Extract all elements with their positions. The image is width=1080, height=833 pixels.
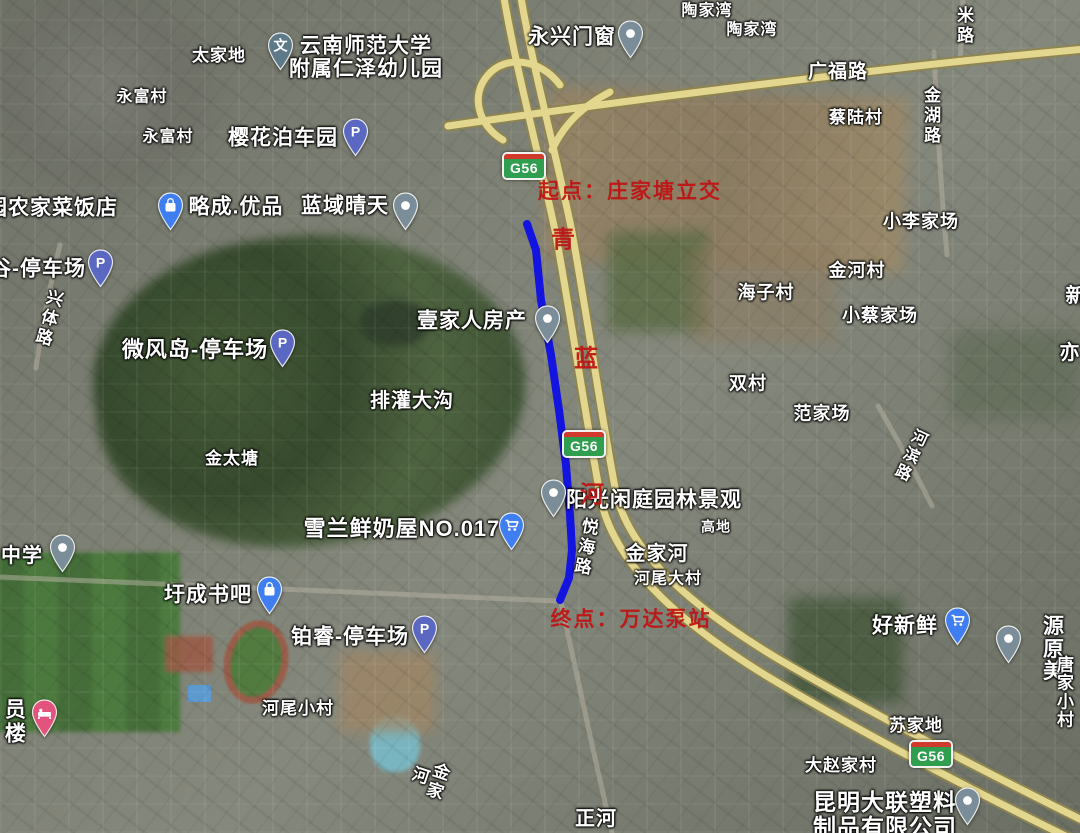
poi-label[interactable]: 蓝域晴天 <box>301 196 389 219</box>
poi-label[interactable]: 樱花泊车园 <box>228 128 338 151</box>
village-label: 唐家小村 <box>1057 656 1075 729</box>
cart-pin[interactable] <box>944 607 971 646</box>
road-label: 金湖路 <box>921 86 939 146</box>
dot-pin[interactable] <box>49 534 76 573</box>
dot-icon <box>541 480 565 517</box>
dot-pin[interactable] <box>617 20 644 59</box>
road-label: 广福路 <box>808 63 868 84</box>
svg-text:P: P <box>95 254 104 270</box>
parking-pin[interactable]: P <box>87 249 114 288</box>
village-label: 金太塘 <box>205 450 259 468</box>
road-label: 河滨路 <box>889 426 929 485</box>
village-label: 金河村 <box>829 261 886 280</box>
hotel-pin[interactable] <box>31 699 58 738</box>
school-wen-icon: 文 <box>268 33 292 70</box>
parking-icon: P <box>88 250 112 287</box>
village-label: 双村 <box>729 374 767 393</box>
dot-icon <box>50 535 74 572</box>
village-label: 小李家场 <box>883 212 959 231</box>
route-annotation-char: 河 <box>580 475 604 510</box>
village-label: 河尾大村 <box>634 570 702 587</box>
village-label: 永富村 <box>142 128 193 145</box>
route-annotation-char: 青 <box>551 220 575 255</box>
parking-pin[interactable]: P <box>269 329 296 368</box>
village-label: 海子村 <box>738 283 795 302</box>
urban-area-topleft <box>0 0 230 210</box>
dot-pin[interactable] <box>540 479 567 518</box>
poi-label[interactable]: 云南师范大学 附属仁泽幼儿园 <box>289 35 443 80</box>
route-polyline <box>527 224 572 600</box>
shopping-cart-icon <box>945 608 969 645</box>
village-label: 大赵家村 <box>805 757 877 775</box>
village-label: 苏家地 <box>889 717 943 735</box>
poi-label[interactable]: 昆明大联塑料 制品有限公司 <box>813 790 957 833</box>
parking-pin[interactable]: P <box>411 615 438 654</box>
poi-label[interactable]: 中学 <box>1 546 43 568</box>
stadium-track <box>216 614 296 709</box>
route-end-annotation: 终点：万达泵站 <box>551 603 712 633</box>
expressway-surface <box>448 0 1080 833</box>
svg-text:P: P <box>277 334 286 350</box>
village-label: 排灌大沟 <box>370 391 454 413</box>
shopping-bag-icon <box>158 193 182 230</box>
grass-field-east <box>608 232 708 332</box>
village-label: 永富村 <box>116 88 167 105</box>
village-label: 高地 <box>701 519 731 534</box>
poi-label[interactable]: 园农家菜饭店 <box>0 198 118 221</box>
dot-icon <box>535 306 559 343</box>
cart-pin[interactable] <box>498 512 525 551</box>
village-label: 金家河 <box>626 544 689 566</box>
dot-icon <box>996 626 1020 663</box>
bag-pin[interactable] <box>157 192 184 231</box>
dot-icon <box>618 21 642 58</box>
sports-fields-bottomleft <box>0 552 180 732</box>
satellite-noise-texture <box>0 0 1080 833</box>
dot-icon <box>955 788 979 825</box>
dot-pin[interactable] <box>995 625 1022 664</box>
village-label: 亦 <box>1060 343 1080 365</box>
poi-label[interactable]: 谷-停车场 <box>0 259 86 282</box>
poi-label[interactable]: 雪兰鲜奶屋NO.017 <box>304 517 501 541</box>
village-label: 金家河 <box>401 746 453 810</box>
dot-pin[interactable] <box>954 787 981 826</box>
dirt-patch-bottom-center <box>340 652 435 732</box>
parking-icon: P <box>270 330 294 367</box>
poi-label[interactable]: 壹家人房产 <box>417 311 527 334</box>
expressway-casing <box>448 0 1080 833</box>
village-label: 陶家湾 <box>681 2 732 19</box>
satellite-map[interactable]: 太家地云南师范大学 附属仁泽幼儿园永富村永富村樱花泊车园园农家菜饭店略成.优品蓝… <box>0 0 1080 833</box>
sports-courts <box>165 636 213 672</box>
village-label: 太家地 <box>192 47 246 65</box>
shield-code: G56 <box>564 437 604 456</box>
street-grid-texture <box>0 0 1080 833</box>
bag-pin[interactable] <box>256 576 283 615</box>
village-label: 小蔡家场 <box>842 306 918 325</box>
svg-text:P: P <box>419 620 428 636</box>
village-label: 新 <box>1066 286 1080 308</box>
parking-pin[interactable]: P <box>342 118 369 157</box>
road-label: 兴体路 <box>30 287 63 350</box>
swimming-pool <box>188 685 211 702</box>
dot-pin[interactable] <box>534 305 561 344</box>
poi-label[interactable]: 员楼 <box>2 698 25 746</box>
poi-label[interactable]: 永兴门窗 <box>528 27 616 50</box>
dot-pin[interactable] <box>392 192 419 231</box>
road-label: 米路 <box>954 6 972 46</box>
poi-label[interactable]: 略成.优品 <box>189 197 284 220</box>
expressway-shield: G56 <box>909 740 953 768</box>
route-annotation-char: 蓝 <box>574 339 598 374</box>
poi-label[interactable]: 好新鲜 <box>872 616 938 639</box>
poi-label[interactable]: 微风岛-停车场 <box>122 338 268 362</box>
kindergarten-pin[interactable]: 文 <box>267 32 294 71</box>
village-label: 河尾小村 <box>262 700 334 718</box>
poi-label[interactable]: 圩成书吧 <box>164 585 252 608</box>
poi-label[interactable]: 铂睿-停车场 <box>291 627 409 650</box>
shopping-cart-icon <box>499 513 523 550</box>
village-label: 陶家湾 <box>726 21 777 38</box>
expressway-shield: G56 <box>562 430 606 458</box>
parking-icon: P <box>412 616 436 653</box>
shield-code: G56 <box>911 747 951 766</box>
svg-text:文: 文 <box>273 37 288 53</box>
parking-icon: P <box>343 119 367 156</box>
hotel-bed-icon <box>32 700 56 737</box>
road-label: 悦海路 <box>570 516 598 578</box>
roads-layer <box>0 0 1080 833</box>
svg-text:P: P <box>350 123 359 139</box>
village-label: 范家场 <box>794 404 851 423</box>
route-start-annotation: 起点：庄家塘立交 <box>538 175 722 205</box>
village-label: 正河 <box>575 809 617 831</box>
shopping-bag-icon <box>257 577 281 614</box>
dot-icon <box>393 193 417 230</box>
village-label: 蔡陆村 <box>829 109 883 127</box>
